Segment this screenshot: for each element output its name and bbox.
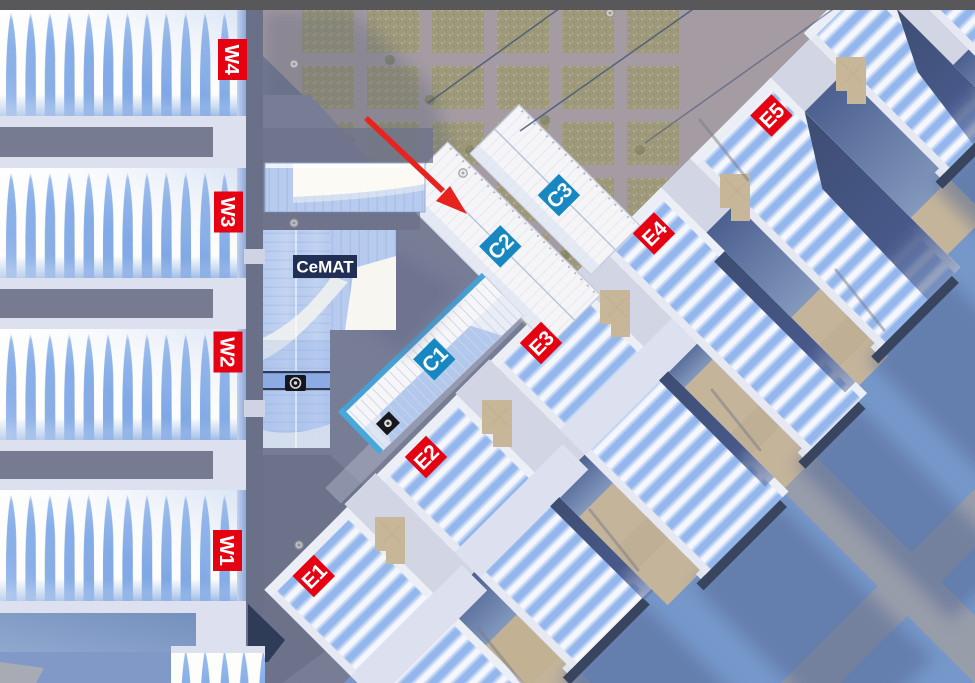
svg-text:W3: W3 <box>216 197 239 227</box>
svg-text:W1: W1 <box>215 536 238 566</box>
svg-text:CeMAT: CeMAT <box>296 258 354 277</box>
svg-text:W4: W4 <box>220 45 243 76</box>
svg-text:W2: W2 <box>216 337 239 367</box>
